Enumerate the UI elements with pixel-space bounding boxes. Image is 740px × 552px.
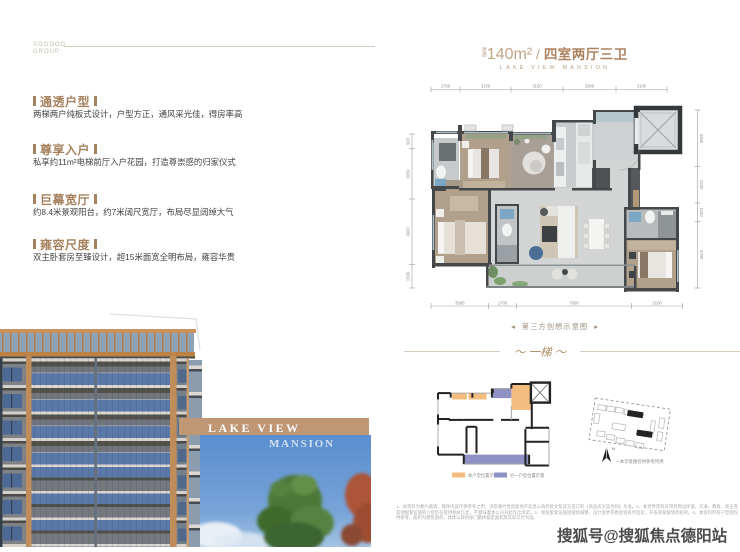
svg-text:3100: 3100 [481,84,491,89]
svg-text:另一户型位置示意: 另一户型位置示意 [510,472,544,479]
svg-text:7000: 7000 [569,301,579,306]
svg-text:3050: 3050 [406,169,411,179]
svg-text:900: 900 [406,137,411,145]
svg-text:3100: 3100 [637,84,647,89]
svg-text:4000: 4000 [406,226,411,236]
svg-text:3100: 3100 [652,301,662,306]
svg-text:本户型位置示意: 本户型位置示意 [468,472,498,479]
svg-text:3300: 3300 [585,84,595,89]
svg-text:3450: 3450 [699,134,704,144]
svg-text:3500: 3500 [455,301,465,306]
svg-text:N: N [612,446,615,451]
svg-text:▪ 本示意图仅供参考所用: ▪ 本示意图仅供参考所用 [617,458,664,465]
svg-text:1500: 1500 [406,271,411,281]
svg-text:2220: 2220 [699,180,704,190]
svg-text:1100: 1100 [699,208,704,218]
svg-text:1700: 1700 [498,301,508,306]
svg-text:3150: 3150 [532,84,542,89]
svg-text:1700: 1700 [441,84,451,89]
svg-text:3700: 3700 [699,250,704,260]
